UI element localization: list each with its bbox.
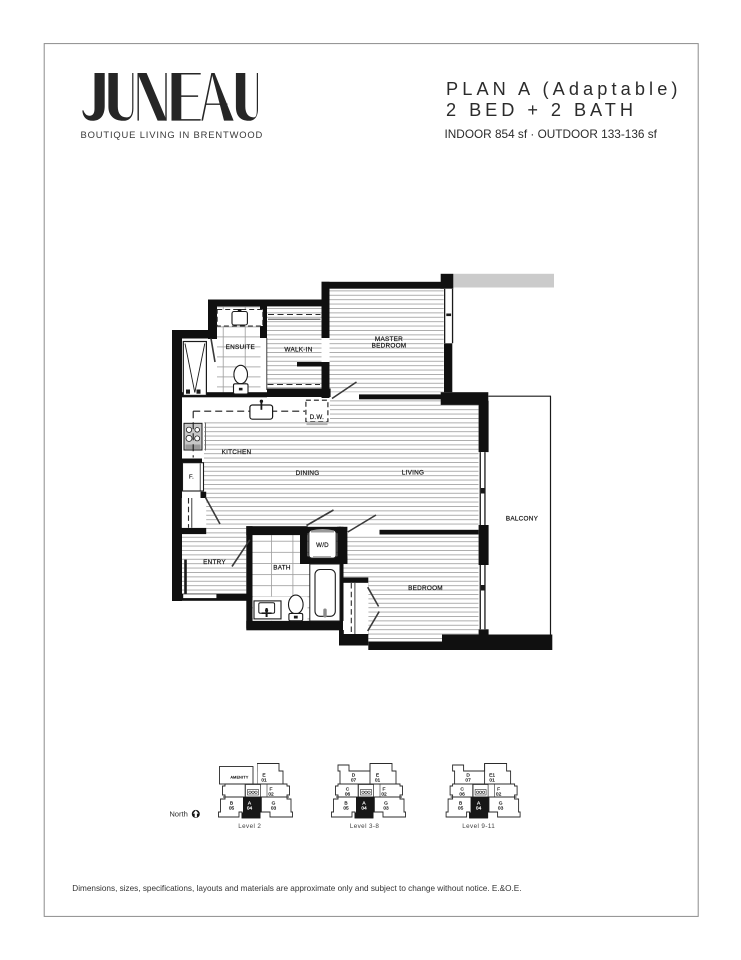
svg-text:05: 05 [343,805,349,811]
svg-text:F.: F. [189,475,194,481]
svg-text:01: 01 [375,778,381,784]
svg-text:04: 04 [247,805,253,811]
svg-text:06: 06 [345,791,351,797]
svg-text:ENSUITE: ENSUITE [226,344,255,351]
svg-text:BALCONY: BALCONY [506,516,539,523]
svg-text:Level 3-8: Level 3-8 [350,823,380,830]
svg-text:Dimensions, sizes, specificati: Dimensions, sizes, specifications, layou… [72,884,521,893]
svg-text:D.W.: D.W. [310,414,324,421]
svg-text:03: 03 [271,805,277,811]
svg-text:01: 01 [261,778,267,784]
svg-text:LIVING: LIVING [402,470,424,477]
svg-text:03: 03 [498,805,504,811]
svg-text:02: 02 [496,791,502,797]
svg-text:05: 05 [458,805,464,811]
svg-text:07: 07 [465,778,471,784]
svg-text:03: 03 [383,805,389,811]
svg-text:06: 06 [459,791,465,797]
svg-text:04: 04 [361,805,367,811]
svg-text:AMENITY: AMENITY [230,776,248,780]
svg-text:ENTRY: ENTRY [203,559,226,566]
svg-text:DINING: DINING [296,470,320,477]
svg-text:BEDROOM: BEDROOM [372,343,407,350]
svg-text:North: North [169,810,188,819]
svg-text:05: 05 [229,805,235,811]
svg-text:W/D: W/D [316,542,329,549]
svg-text:04: 04 [476,805,482,811]
svg-text:Level 2: Level 2 [238,823,261,830]
svg-text:01: 01 [489,778,495,784]
svg-text:02: 02 [268,791,274,797]
svg-text:02: 02 [381,791,387,797]
svg-text:BEDROOM: BEDROOM [408,585,443,592]
svg-text:WALK-IN: WALK-IN [284,347,312,354]
svg-text:Level 9-11: Level 9-11 [462,823,495,830]
svg-text:BATH: BATH [273,564,291,571]
svg-text:07: 07 [351,778,357,784]
svg-text:KITCHEN: KITCHEN [222,449,252,456]
